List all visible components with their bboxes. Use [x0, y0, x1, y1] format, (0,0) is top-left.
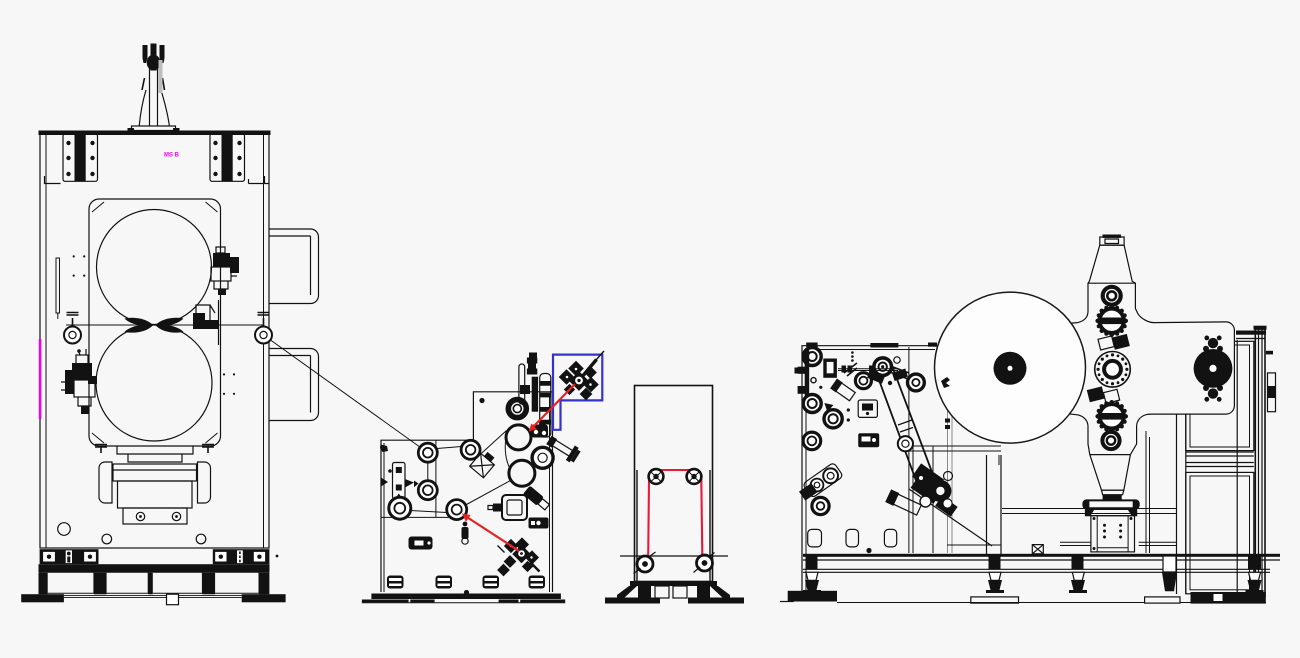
- svg-text:MS B: MS B: [164, 153, 180, 159]
